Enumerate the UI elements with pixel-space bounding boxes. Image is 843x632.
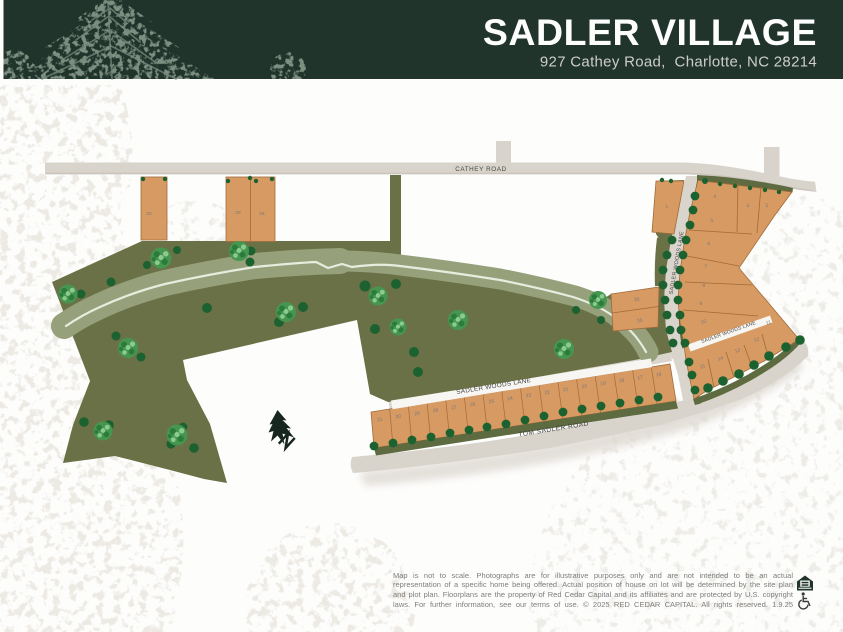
svg-text:36: 36 xyxy=(637,318,643,325)
svg-text:33: 33 xyxy=(235,210,241,216)
svg-text:CATHEY ROAD: CATHEY ROAD xyxy=(455,166,507,173)
svg-text:32: 32 xyxy=(146,211,152,217)
svg-text:927 Cathey Road, Charlotte, N: 927 Cathey Road, Charlotte, NC 28214 xyxy=(540,54,817,71)
svg-text:SADLER VILLAGE: SADLER VILLAGE xyxy=(483,11,817,53)
svg-text:35: 35 xyxy=(634,297,640,304)
svg-text:34: 34 xyxy=(259,211,265,217)
